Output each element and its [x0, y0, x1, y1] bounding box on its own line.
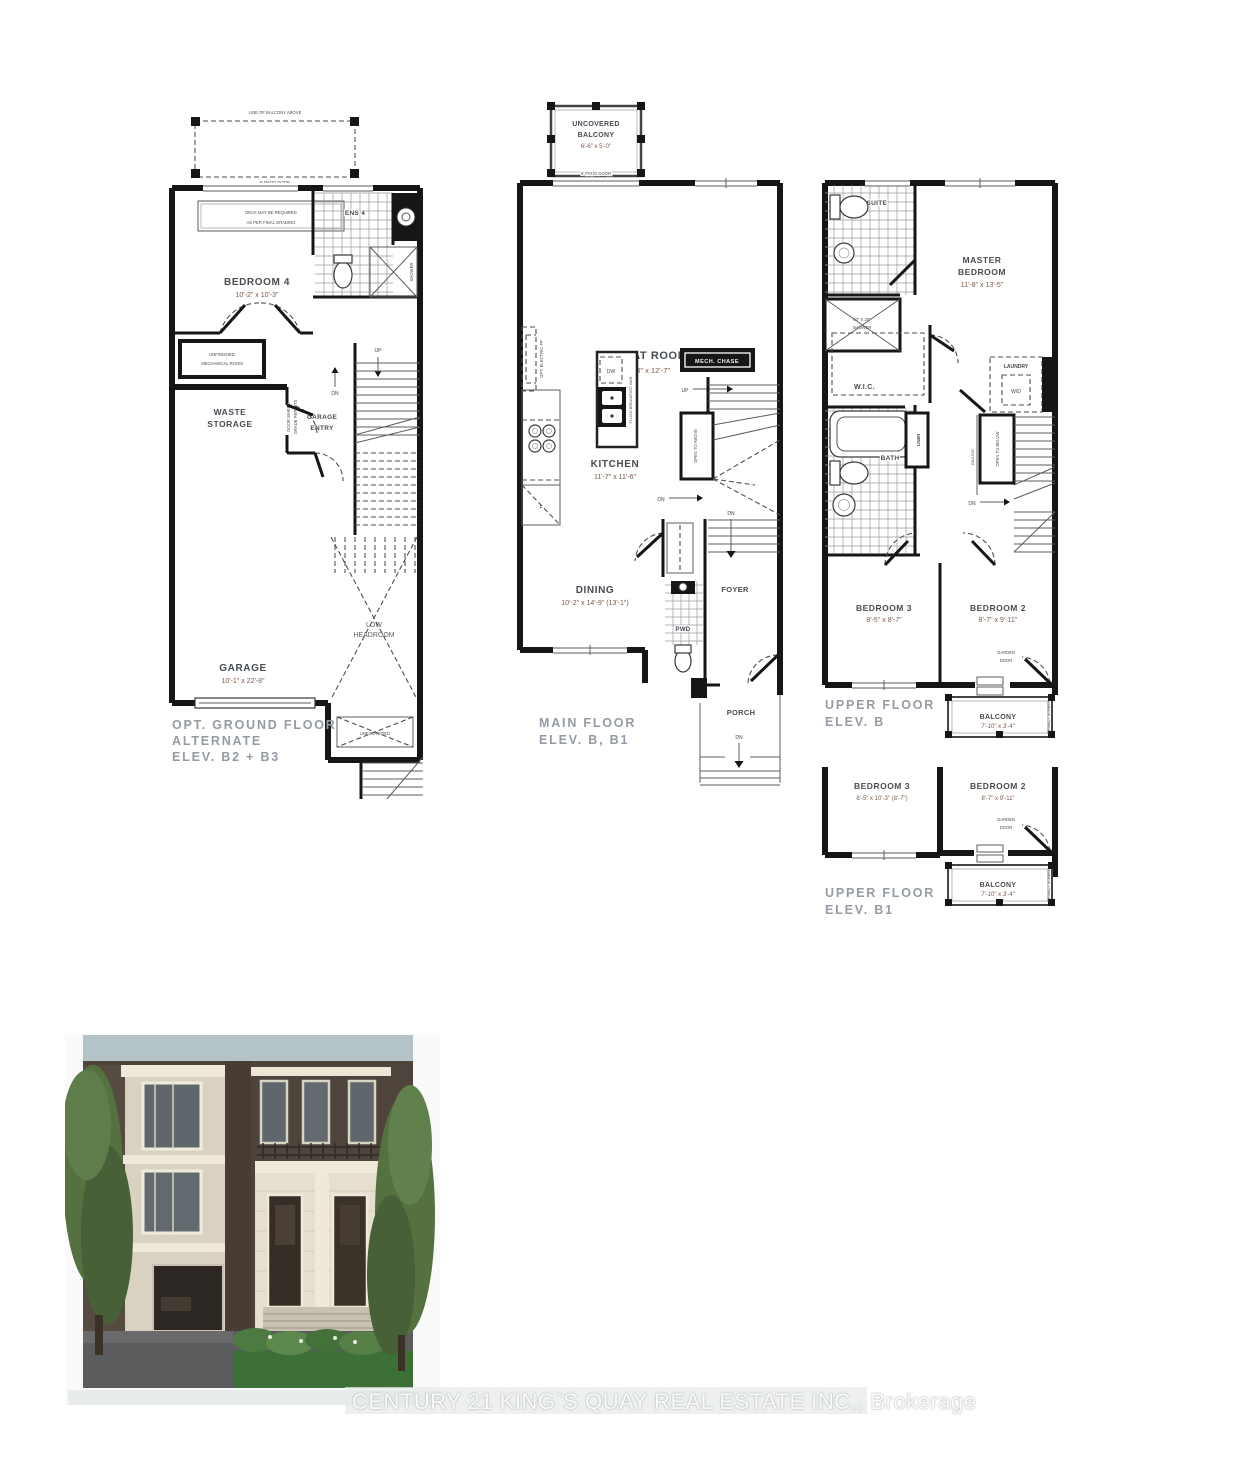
- fridge-label: F: [539, 505, 542, 511]
- b1-bedroom3-label: BEDROOM 3: [854, 781, 910, 791]
- main-dn1-label: DN: [657, 497, 665, 503]
- front-door: [748, 655, 778, 683]
- flush-breakfast-bar-label: FLUSH BREAKFAST BAR: [628, 376, 633, 423]
- ensuite: ENSUITE: [825, 183, 915, 295]
- photo-content: [65, 1035, 440, 1433]
- powder-room: PWD: [665, 581, 703, 672]
- ens4-shower-label: SHOWER: [409, 263, 414, 282]
- dining-label: DINING: [576, 585, 615, 596]
- master-label-2: BEDROOM: [958, 267, 1006, 277]
- up-label: UP: [375, 348, 383, 354]
- b1-balcony-label: BALCONY: [980, 882, 1017, 889]
- kitchen-dim: 11'-7" x 11'-6": [594, 474, 637, 481]
- floorplan-sheet: LINE OF BALCONY ABOVE 8' PATIO DOOR DECK…: [0, 0, 1234, 1458]
- master-dim: 11'-8" x 13'-5": [961, 282, 1004, 289]
- upper-floor-plans: ENSUITE 60" X 30" SHOWER MASTER BEDROOM …: [810, 165, 1070, 965]
- brokerage-watermark: CENTURY 21 KING`S QUAY REAL ESTATE INC.,…: [352, 1389, 976, 1415]
- b1-bedroom2-label: BEDROOM 2: [970, 781, 1026, 791]
- main-caption-2: ELEV. B, B1: [539, 733, 629, 747]
- mech-label-1: UNFINISHED: [209, 352, 235, 357]
- shower-dim-label: 60" X 30": [853, 317, 871, 322]
- mechanical-room: UNFINISHED MECHANICAL ROOM: [180, 341, 264, 377]
- ground-caption-3: ELEV. B2 + B3: [172, 750, 280, 764]
- dishwasher-label: DW: [607, 369, 616, 375]
- open-to-below-label: OPEN TO BELOW: [995, 431, 1000, 466]
- b-balcony-dim: 7'-10" x 3'-4": [981, 724, 1015, 730]
- foyer-label: FOYER: [721, 585, 749, 594]
- door-grade-label-2: GRADE PERMITS: [293, 399, 298, 434]
- linen-closet: LINEN: [906, 413, 928, 467]
- upper-b-caption-1: UPPER FLOOR: [825, 698, 935, 712]
- exterior-rendering-photo: [65, 1035, 440, 1433]
- waste-label-2: STORAGE: [207, 419, 252, 429]
- open-to-above-label: OPEN TO ABOVE: [693, 429, 698, 463]
- main-up-label: UP: [682, 388, 690, 394]
- ground-balcony-outline: LINE OF BALCONY ABOVE 8' PATIO DOOR: [191, 110, 359, 185]
- mech-label-2: MECHANICAL ROOM: [201, 361, 243, 366]
- b1-garden-door-label-2: DOOR: [1000, 825, 1013, 830]
- pwd-label: PWD: [676, 627, 691, 633]
- upper-b1-caption-1: UPPER FLOOR: [825, 886, 935, 900]
- mech-chase: MECH. CHASE: [680, 348, 755, 372]
- low-headroom-label-1: LOW: [366, 622, 382, 629]
- main-balcony: UNCOVERED BALCONY 6'-6" x 5'-0" 5' PATIO…: [547, 102, 645, 177]
- b-bedroom3-label: BEDROOM 3: [856, 603, 912, 613]
- line-of-balcony-label: LINE OF BALCONY ABOVE: [249, 110, 302, 115]
- linen-label: LINEN: [916, 434, 921, 447]
- main-dn2-label: DN: [727, 511, 735, 517]
- deck-note-line2: AS PER FINAL GRADING: [247, 220, 296, 225]
- b-balcony-label: BALCONY: [980, 714, 1017, 721]
- bedroom4-doors: [172, 303, 313, 333]
- porch-dn-label: DN: [735, 735, 743, 741]
- b-garden-door-label-1: GARDEN: [997, 650, 1015, 655]
- patio-door-5-label: 5' PATIO DOOR: [581, 171, 611, 176]
- garage-entry: DOOR WHERE GRADE PERMITS GARAGE ENTRY: [286, 343, 355, 535]
- ground-walls: [172, 183, 420, 760]
- ground-entry-steps: [361, 757, 423, 799]
- b1-bedroom2-dim: 8'-7" x 9'-11": [981, 796, 1014, 802]
- laundry: LAUNDRY W/D: [960, 357, 1055, 412]
- b1-garden-door-label-1: GARDEN: [997, 817, 1015, 822]
- kitchen-label: KITCHEN: [591, 459, 640, 470]
- low-headroom: LOW HEADROOM: [331, 537, 417, 699]
- garage-entry-label-2: ENTRY: [310, 425, 334, 432]
- deck-note-line1: DECK MAY BE REQUIRED: [245, 210, 297, 215]
- b-bedroom2-label: BEDROOM 2: [970, 603, 1026, 613]
- dn-label: DN: [331, 391, 339, 397]
- bedroom4-label: BEDROOM 4: [224, 277, 290, 288]
- main-floor-plan: UNCOVERED BALCONY 6'-6" x 5'-0" 5' PATIO…: [495, 95, 785, 795]
- garage-label: GARAGE: [219, 663, 267, 674]
- upper-dn-label: DN: [968, 501, 976, 507]
- shower: 60" X 30" SHOWER: [825, 299, 900, 351]
- upper-stairs: RAILING OPEN TO BELOW DN: [968, 415, 1055, 552]
- low-headroom-label-2: HEADROOM: [353, 632, 394, 639]
- ground-stairs: UP DN: [331, 348, 420, 525]
- wic-label: W.I.C.: [854, 384, 875, 391]
- washer-dryer-label: W/D: [1011, 389, 1021, 395]
- garage-dim: 10'-1" x 22'-8": [221, 678, 265, 685]
- b-privacy-screen-label: PRIVACY SCREEN: [1047, 700, 1051, 733]
- uncovered-balcony-label-2: BALCONY: [578, 132, 615, 139]
- main-stairs: UP OPEN TO ABOVE DN DN: [657, 377, 780, 558]
- ground-caption-2: ALTERNATE: [172, 734, 262, 748]
- upper-b1-balcony: BALCONY 7'-10" x 3'-4" PRIVACY SCREEN: [945, 862, 1055, 906]
- ground-caption-1: OPT. GROUND FLOOR: [172, 718, 337, 732]
- dining-dim: 10'-2" x 14'-9" (13'-1"): [561, 600, 629, 607]
- deck-note: DECK MAY BE REQUIRED AS PER FINAL GRADIN…: [198, 201, 344, 231]
- b1-balcony-dim: 7'-10" x 3'-4": [981, 892, 1015, 898]
- unexcavated-label: UNEXCAVATED: [360, 731, 390, 736]
- b-bedroom2-dim: 8'-7" x 9'-11": [979, 617, 1018, 624]
- ground-floor-plan: LINE OF BALCONY ABOVE 8' PATIO DOOR DECK…: [165, 105, 435, 805]
- b-garden-door-label-2: DOOR: [1000, 658, 1013, 663]
- upper-b-caption-2: ELEV. B: [825, 715, 885, 729]
- main-walls: [520, 178, 780, 695]
- railing-label: RAILING: [970, 449, 975, 465]
- porch: PORCH DN: [691, 678, 780, 785]
- b-bedroom3-dim: 8'-5" x 8'-7": [866, 617, 902, 624]
- main-caption-1: MAIN FLOOR: [539, 716, 636, 730]
- hall-doors: [885, 533, 995, 565]
- uncovered-balcony-dim: 6'-6" x 5'-0": [581, 144, 611, 150]
- waste-label-1: WASTE: [214, 407, 247, 417]
- bedroom4-dim: 10'-2" x 10'-3": [235, 292, 279, 299]
- bath-label: BATH: [881, 455, 900, 462]
- electric-fireplace: OPT. ELECTRIC FP: [522, 327, 544, 391]
- ensuite4: ENS 4 SHOWER: [313, 188, 420, 297]
- mech-chase-label: MECH. CHASE: [695, 359, 739, 365]
- upper-b1-caption-2: ELEV. B1: [825, 903, 894, 917]
- upper-b-balcony: BALCONY 7'-10" x 3'-4" PRIVACY SCREEN: [945, 694, 1055, 738]
- kitchen-island: DW FLUSH BREAKFAST BAR: [597, 352, 637, 447]
- porch-label: PORCH: [727, 708, 756, 717]
- master-label-1: MASTER: [963, 255, 1002, 265]
- b1-privacy-screen-label: PRIVACY SCREEN: [1047, 868, 1051, 901]
- opt-electric-fp-label: OPT. ELECTRIC FP: [539, 340, 544, 378]
- kitchen-counter: F: [522, 390, 560, 525]
- laundry-label: LAUNDRY: [1004, 364, 1029, 370]
- ens4-label: ENS 4: [345, 210, 365, 217]
- shower-label: SHOWER: [853, 325, 872, 330]
- unexcavated: UNEXCAVATED: [337, 717, 413, 747]
- garage-door: [195, 698, 315, 708]
- b1-bedroom3-dim: 8'-5" x 10'-3" (8'-7"): [856, 796, 907, 802]
- uncovered-balcony-label-1: UNCOVERED: [572, 121, 619, 128]
